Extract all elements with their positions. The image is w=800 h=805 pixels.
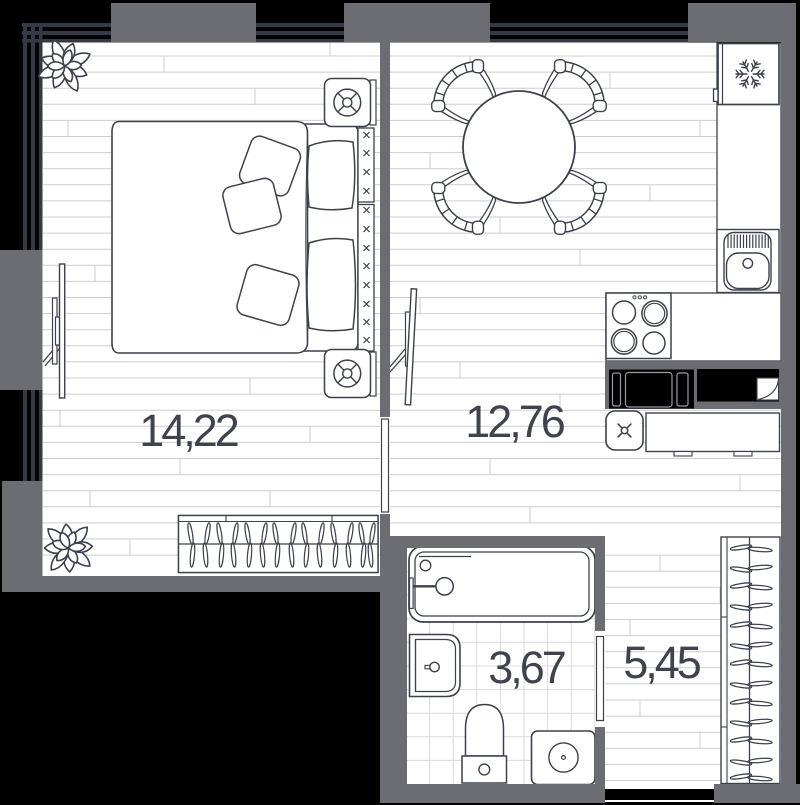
- svg-text:12,76: 12,76: [465, 396, 565, 447]
- svg-text:3,67: 3,67: [488, 642, 565, 693]
- svg-text:5,45: 5,45: [623, 637, 701, 688]
- svg-text:14,22: 14,22: [139, 405, 238, 456]
